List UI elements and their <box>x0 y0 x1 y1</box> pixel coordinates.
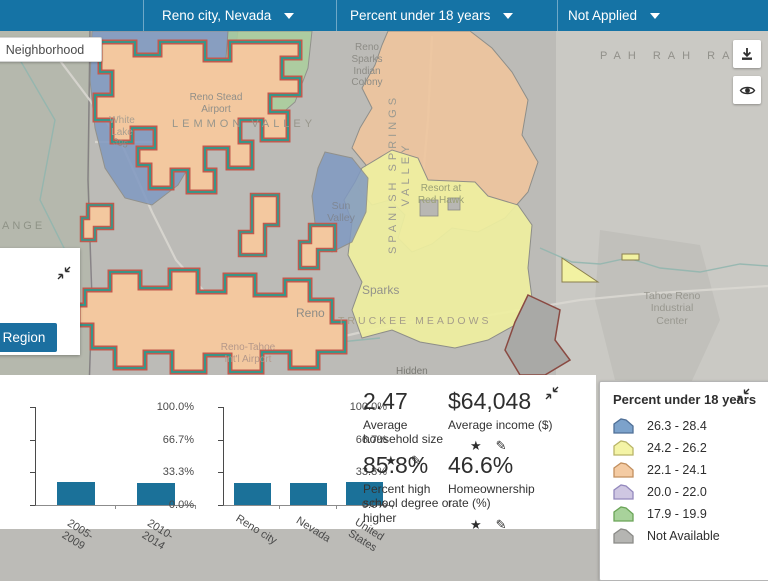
legend-item: 24.2 - 26.2 <box>613 437 768 459</box>
bar[interactable] <box>57 482 95 505</box>
chart-y-axis <box>190 407 223 505</box>
map-hole <box>448 198 460 210</box>
stat-label: Percent high school degree or higher <box>363 482 459 525</box>
eye-icon <box>739 82 756 99</box>
stat-label: Average household size <box>363 418 459 447</box>
legend-swatch <box>613 528 634 544</box>
chevron-down-icon <box>650 13 660 19</box>
download-button[interactable] <box>733 40 761 68</box>
chart-y-axis <box>2 407 35 505</box>
legend-item-label: 17.9 - 19.9 <box>647 507 707 521</box>
filter-dropdown[interactable]: Not Applied <box>568 0 660 31</box>
y-tick-label: 100.0% <box>157 401 194 413</box>
favorite-star-icon[interactable]: ★ <box>470 517 482 533</box>
neighborhood-toggle-button[interactable]: Neighborhood <box>0 37 102 62</box>
legend-item-label: Not Available <box>647 529 720 543</box>
stat-label: Average income ($) <box>448 418 558 432</box>
stat-label: Homeownership rate (%) <box>448 482 558 511</box>
toolbar-divider <box>557 0 558 31</box>
legend-item: 20.0 - 22.0 <box>613 481 768 503</box>
x-category-label: Nevada <box>289 512 336 548</box>
stat-value: 46.6% <box>448 452 558 479</box>
collapse-panel-icon[interactable] <box>57 266 71 280</box>
legend-item-label: 20.0 - 22.0 <box>647 485 707 499</box>
legend-item: 26.3 - 28.4 <box>613 415 768 437</box>
comparison-bar-chart: 0.0%33.3%66.7%100.0%Reno cityNevadaUnite… <box>190 375 390 529</box>
visibility-button[interactable] <box>733 76 761 104</box>
x-category-label: 2010-2014 <box>130 512 184 559</box>
stat-high-school-degree: 85.8% Percent high school degree or high… <box>363 452 459 525</box>
collapse-stats-icon[interactable] <box>545 386 559 400</box>
stat-value: 2.47 <box>363 388 459 415</box>
filter-dropdown-label: Not Applied <box>568 8 637 23</box>
data-panel: 0.0%33.3%66.7%100.0%2005-20092010-2014 0… <box>0 375 596 529</box>
legend-panel: Percent under 18 years 26.3 - 28.424.2 -… <box>599 381 768 581</box>
legend-item: Not Available <box>613 525 768 547</box>
legend-swatch <box>613 440 634 456</box>
variable-dropdown-label: Percent under 18 years <box>350 8 490 23</box>
top-toolbar: Reno city, Nevada Percent under 18 years… <box>0 0 768 31</box>
map-region-yellow-small[interactable] <box>622 254 639 260</box>
region-dropdown[interactable]: Reno city, Nevada <box>162 0 294 31</box>
x-category-label: 2005-2009 <box>50 512 104 559</box>
legend-swatch <box>613 484 634 500</box>
region-dropdown-label: Reno city, Nevada <box>162 8 271 23</box>
edit-region-button[interactable]: Edit Region <box>0 323 57 352</box>
toolbar-divider <box>336 0 337 31</box>
stat-homeownership-rate: 46.6% Homeownership rate (%) ★✎ <box>448 452 558 533</box>
x-category-label: Reno city <box>232 512 279 548</box>
legend-item: 22.1 - 24.1 <box>613 459 768 481</box>
legend-item-label: 26.3 - 28.4 <box>647 419 707 433</box>
map-hole <box>420 200 438 216</box>
toolbar-divider <box>143 0 144 31</box>
chart-plot-area <box>35 407 196 506</box>
collapse-legend-icon[interactable] <box>736 388 750 402</box>
edit-pencil-icon[interactable]: ✎ <box>496 517 507 533</box>
legend-swatch <box>613 418 634 434</box>
legend-item-label: 22.1 - 24.1 <box>647 463 707 477</box>
chevron-down-icon <box>503 13 513 19</box>
bar[interactable] <box>234 483 271 505</box>
download-icon <box>739 46 755 62</box>
trend-bar-chart: 0.0%33.3%66.7%100.0%2005-20092010-2014 <box>2 375 197 529</box>
bar[interactable] <box>290 483 327 505</box>
legend-item-label: 24.2 - 26.2 <box>647 441 707 455</box>
stat-value: 85.8% <box>363 452 459 479</box>
chevron-down-icon <box>284 13 294 19</box>
legend-swatch <box>613 462 634 478</box>
legend-item: 17.9 - 19.9 <box>613 503 768 525</box>
stat-value: $64,048 <box>448 388 558 415</box>
legend-swatch <box>613 506 634 522</box>
variable-dropdown[interactable]: Percent under 18 years <box>350 0 513 31</box>
legend-items: 26.3 - 28.424.2 - 26.222.1 - 24.120.0 - … <box>613 415 768 547</box>
stat-average-income: $64,048 Average income ($) ★✎ <box>448 388 558 454</box>
